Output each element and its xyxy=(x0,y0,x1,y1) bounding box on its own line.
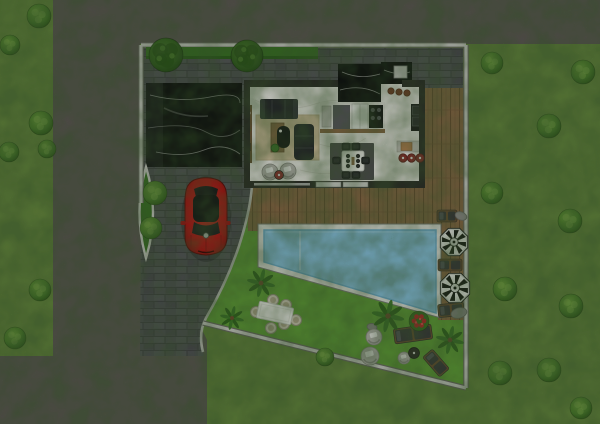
marble-parking-pad xyxy=(146,83,242,167)
bush xyxy=(38,140,56,158)
bowl xyxy=(388,88,394,94)
bush xyxy=(0,35,20,55)
garden-chair xyxy=(266,323,277,334)
kitchen-sink xyxy=(394,66,407,78)
pouf xyxy=(361,347,379,365)
bowl xyxy=(396,89,402,95)
bush xyxy=(481,52,503,74)
pouf xyxy=(398,352,410,364)
dining-chair xyxy=(342,172,350,179)
bowl xyxy=(404,90,410,96)
dining-chair xyxy=(352,143,360,150)
chaise-sofa xyxy=(294,124,314,160)
bush xyxy=(488,361,512,385)
bush xyxy=(559,294,583,318)
side-table-dot xyxy=(413,352,415,354)
dining-chair xyxy=(333,157,341,164)
bush xyxy=(316,348,334,366)
bar-stool-dot xyxy=(419,157,421,159)
dining-chair xyxy=(362,157,370,164)
dining-chair xyxy=(352,172,360,179)
bush xyxy=(481,182,503,204)
bush xyxy=(570,397,592,419)
dining-chair xyxy=(342,143,350,150)
car-logo xyxy=(203,233,208,238)
bush xyxy=(27,4,51,28)
lounger xyxy=(438,259,462,271)
pouf xyxy=(366,329,382,345)
entrance-bush xyxy=(140,217,162,239)
kitchen-counter xyxy=(320,102,385,133)
bush xyxy=(558,209,582,233)
site-plan-image xyxy=(0,0,600,424)
bush xyxy=(493,277,517,301)
bush xyxy=(571,60,595,84)
cooktop xyxy=(369,105,383,128)
black-tray xyxy=(277,126,290,148)
cabinet xyxy=(333,105,350,129)
sofa xyxy=(260,99,298,119)
bush xyxy=(29,279,51,301)
bush xyxy=(0,142,19,162)
plant-pot xyxy=(271,144,279,152)
entrance-bush xyxy=(143,181,167,205)
tree xyxy=(149,38,183,72)
flower-bush xyxy=(409,311,429,331)
kitchen-island xyxy=(338,62,412,103)
bush xyxy=(29,111,53,135)
bush xyxy=(537,114,561,138)
side-table-dot xyxy=(278,174,280,176)
car-roof xyxy=(193,195,219,222)
bar-stool-dot xyxy=(410,157,412,159)
bush xyxy=(537,358,561,382)
bar-stool-dot xyxy=(402,157,404,159)
tree xyxy=(231,40,263,72)
bush xyxy=(4,327,26,349)
lounger xyxy=(437,210,457,222)
